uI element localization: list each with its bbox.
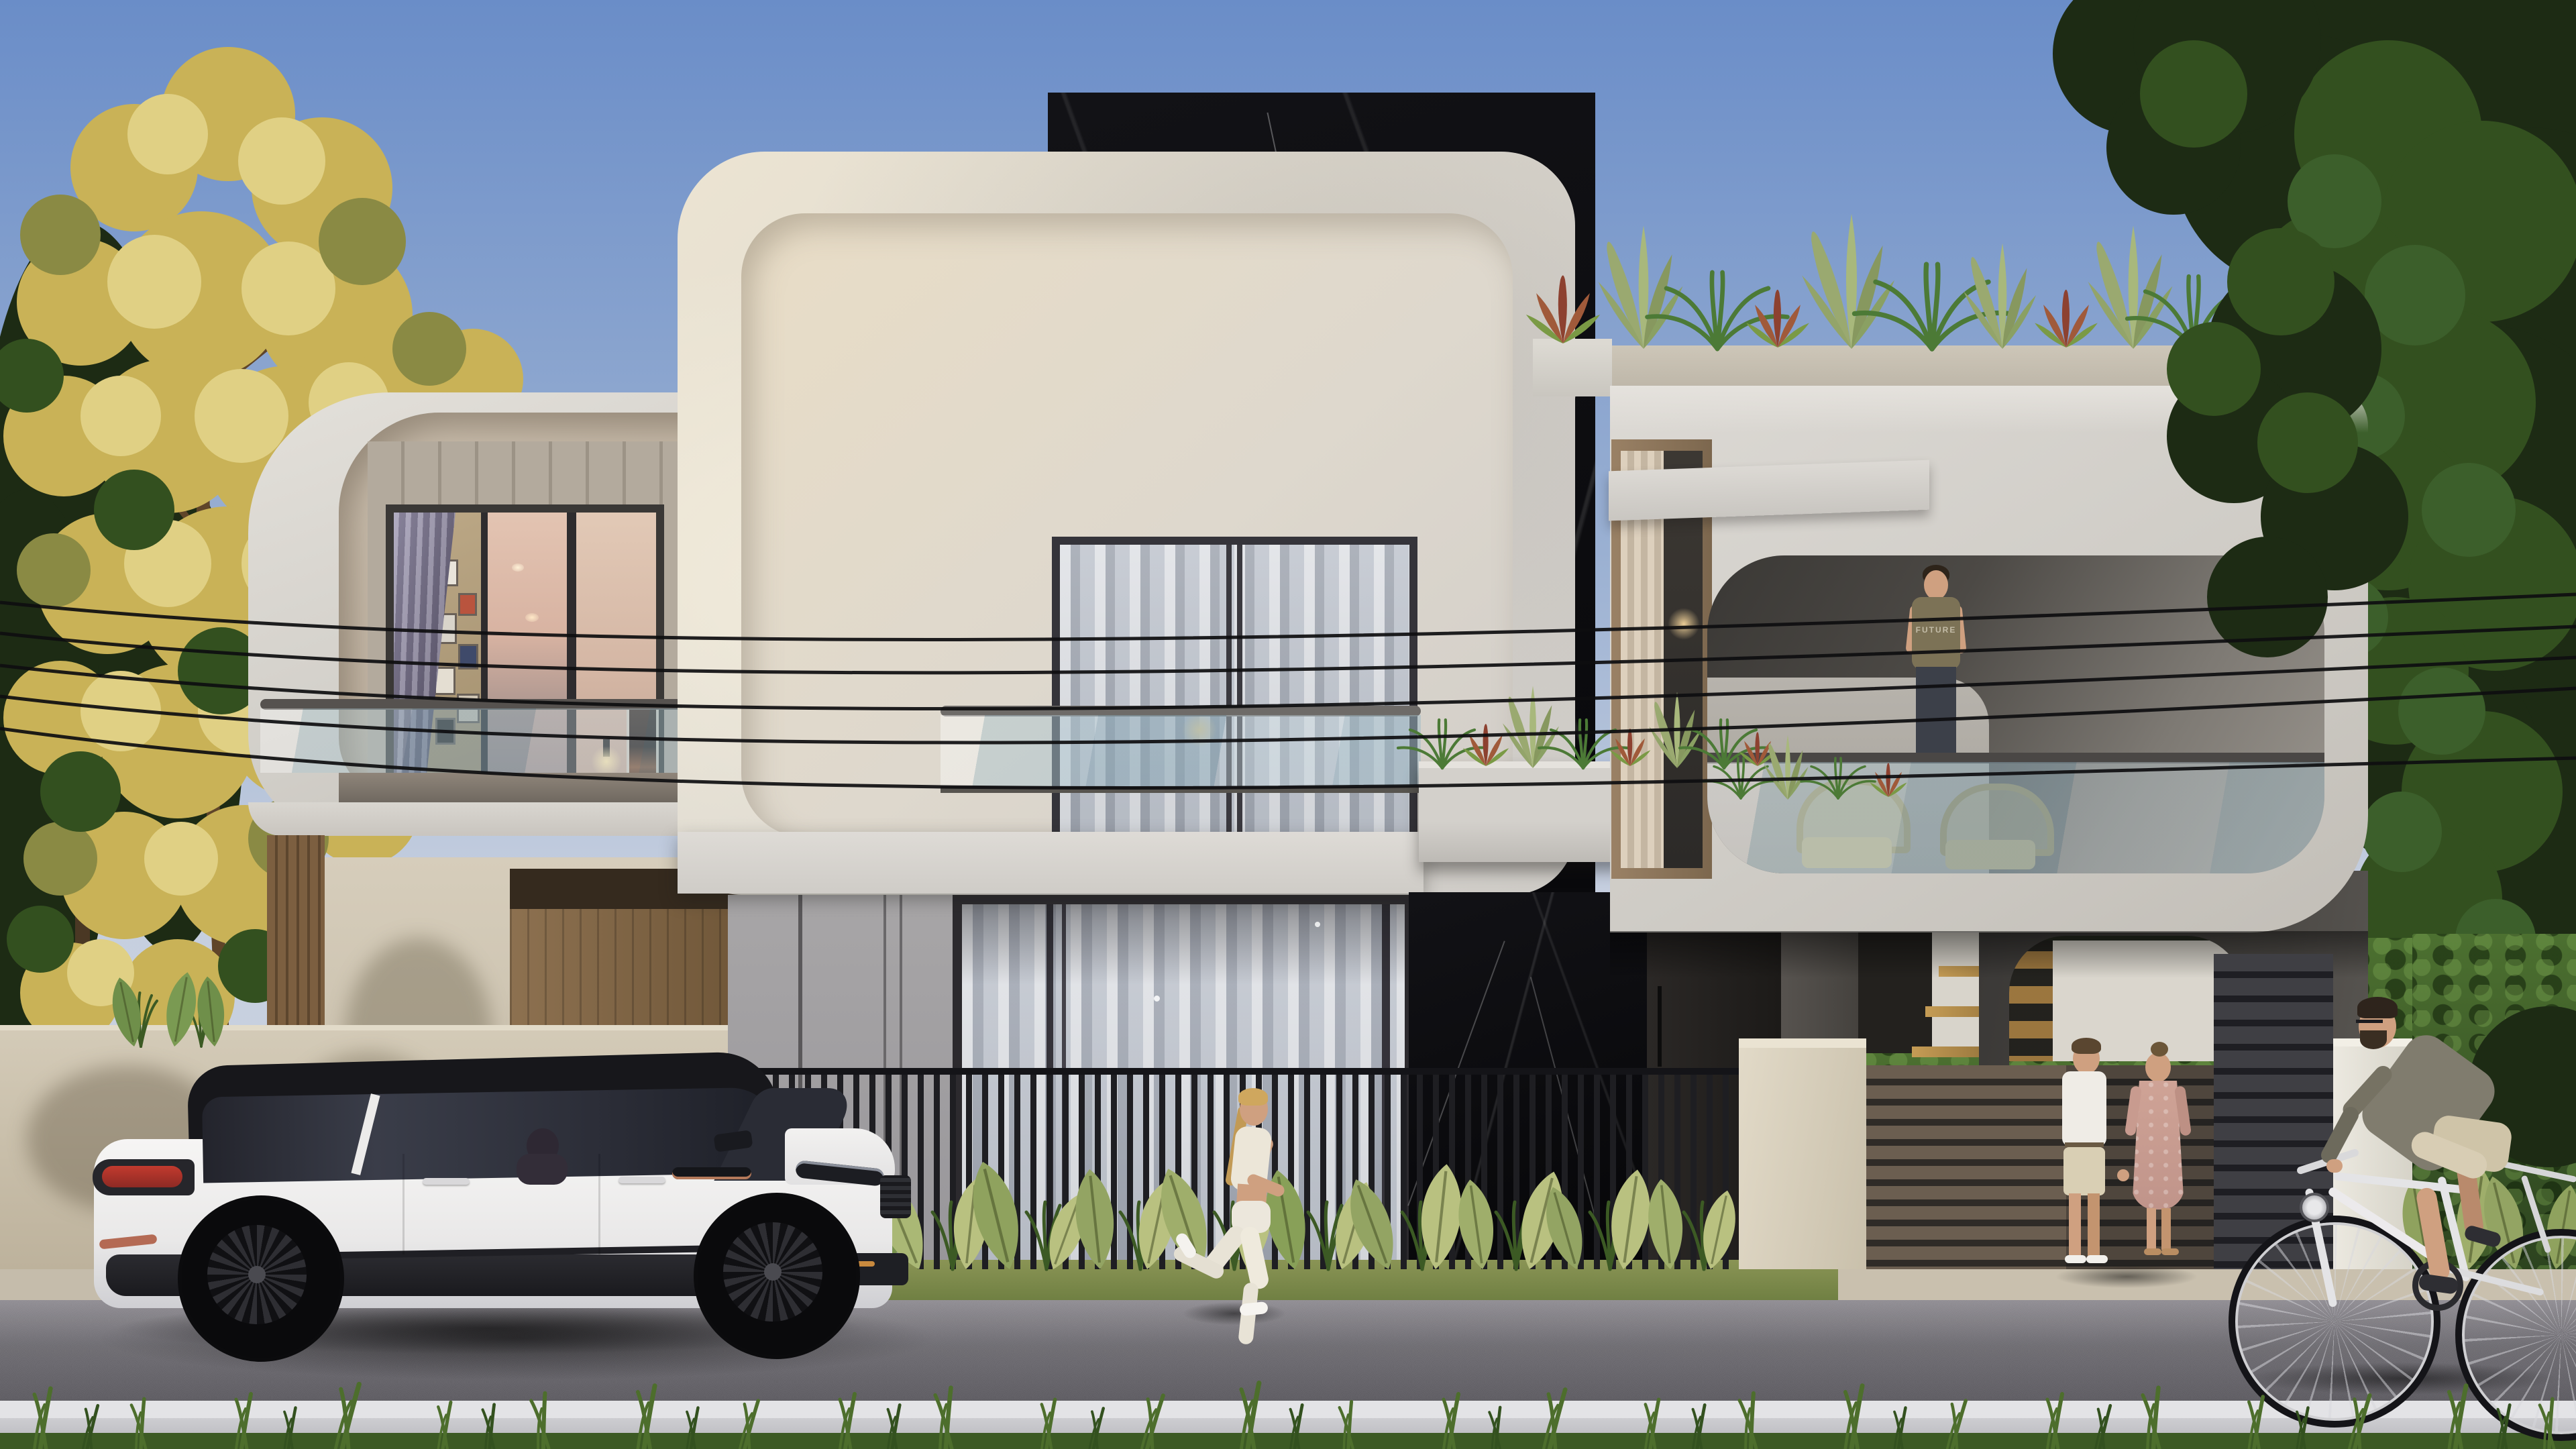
scene-stage: FUTURE — [0, 0, 2576, 1449]
foreground-grass — [0, 0, 2576, 1449]
viewport: FUTURE — [0, 0, 2576, 1449]
